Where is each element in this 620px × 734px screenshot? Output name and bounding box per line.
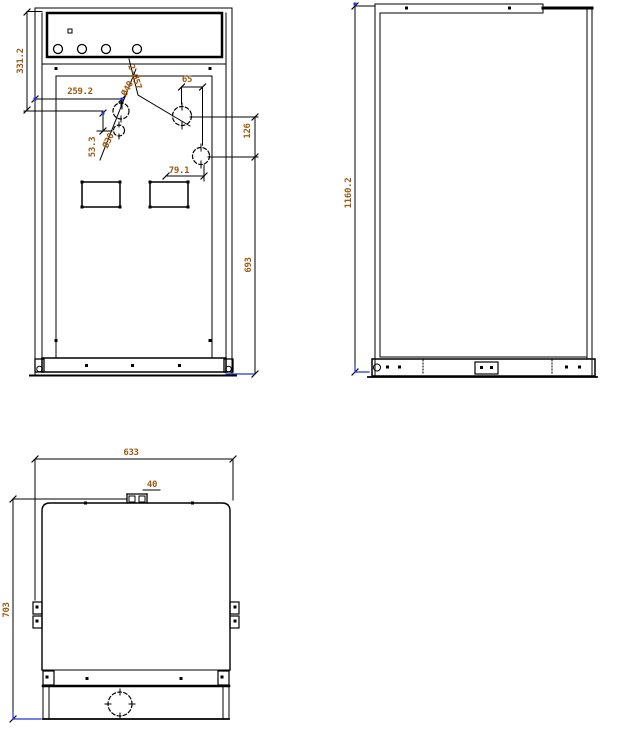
cable-hole-ticks [105, 689, 135, 719]
dim-label-703: 703 [2, 602, 12, 617]
side-top-dots [405, 7, 511, 10]
drawing-canvas [0, 0, 620, 734]
front-knockouts [113, 103, 210, 165]
cable-hole-circle [108, 692, 132, 716]
cutout-corner-dots [81, 181, 190, 209]
panel-hole-2 [78, 45, 87, 54]
circle-centre-ticks [119, 100, 201, 168]
cutout-right [150, 182, 188, 207]
panel-hole-1 [54, 45, 63, 54]
plan-side-brackets [33, 602, 239, 628]
front-dimensions [24, 12, 258, 375]
dim-label-40: 40 [147, 480, 157, 490]
dim-label-126: 126 [243, 123, 253, 138]
dim-label-259-2: 259.2 [67, 87, 93, 97]
plan-view [13, 459, 239, 719]
plan-dimensions [13, 459, 233, 719]
plan-top-bracket [127, 494, 147, 503]
panel-square-hole [68, 29, 72, 33]
dim-label-633: 633 [123, 448, 138, 458]
dim-label-331-2: 331.2 [16, 48, 26, 74]
dim-label-53-3: 53.3 [88, 137, 98, 157]
front-view [24, 8, 258, 376]
dim-label-65: 65 [182, 75, 192, 85]
leader-holes-57 [129, 59, 190, 126]
plan-bottom-dots [46, 676, 224, 681]
front-top-panel [47, 13, 222, 57]
base-screw-dots [85, 364, 181, 367]
grip-marks [13, 3, 369, 720]
side-dimensions [355, 6, 375, 372]
cad-drawing-page: 331.2 259.2 Ø40 Ø30 2-Ø57 53.3 65 126 79… [0, 0, 620, 734]
dim-label-79-1: 79.1 [169, 166, 189, 176]
dim-label-1160-2: 1160.2 [344, 178, 354, 209]
side-base-plate [475, 362, 498, 374]
panel-hole-3 [102, 45, 111, 54]
dim-label-693: 693 [244, 257, 254, 272]
plan-body-outline [42, 503, 230, 670]
plan-bracket-dots [36, 606, 237, 623]
plan-bottom-assembly [42, 670, 230, 719]
cutout-left [82, 182, 120, 207]
side-view [355, 4, 597, 377]
panel-hole-4 [133, 45, 142, 54]
